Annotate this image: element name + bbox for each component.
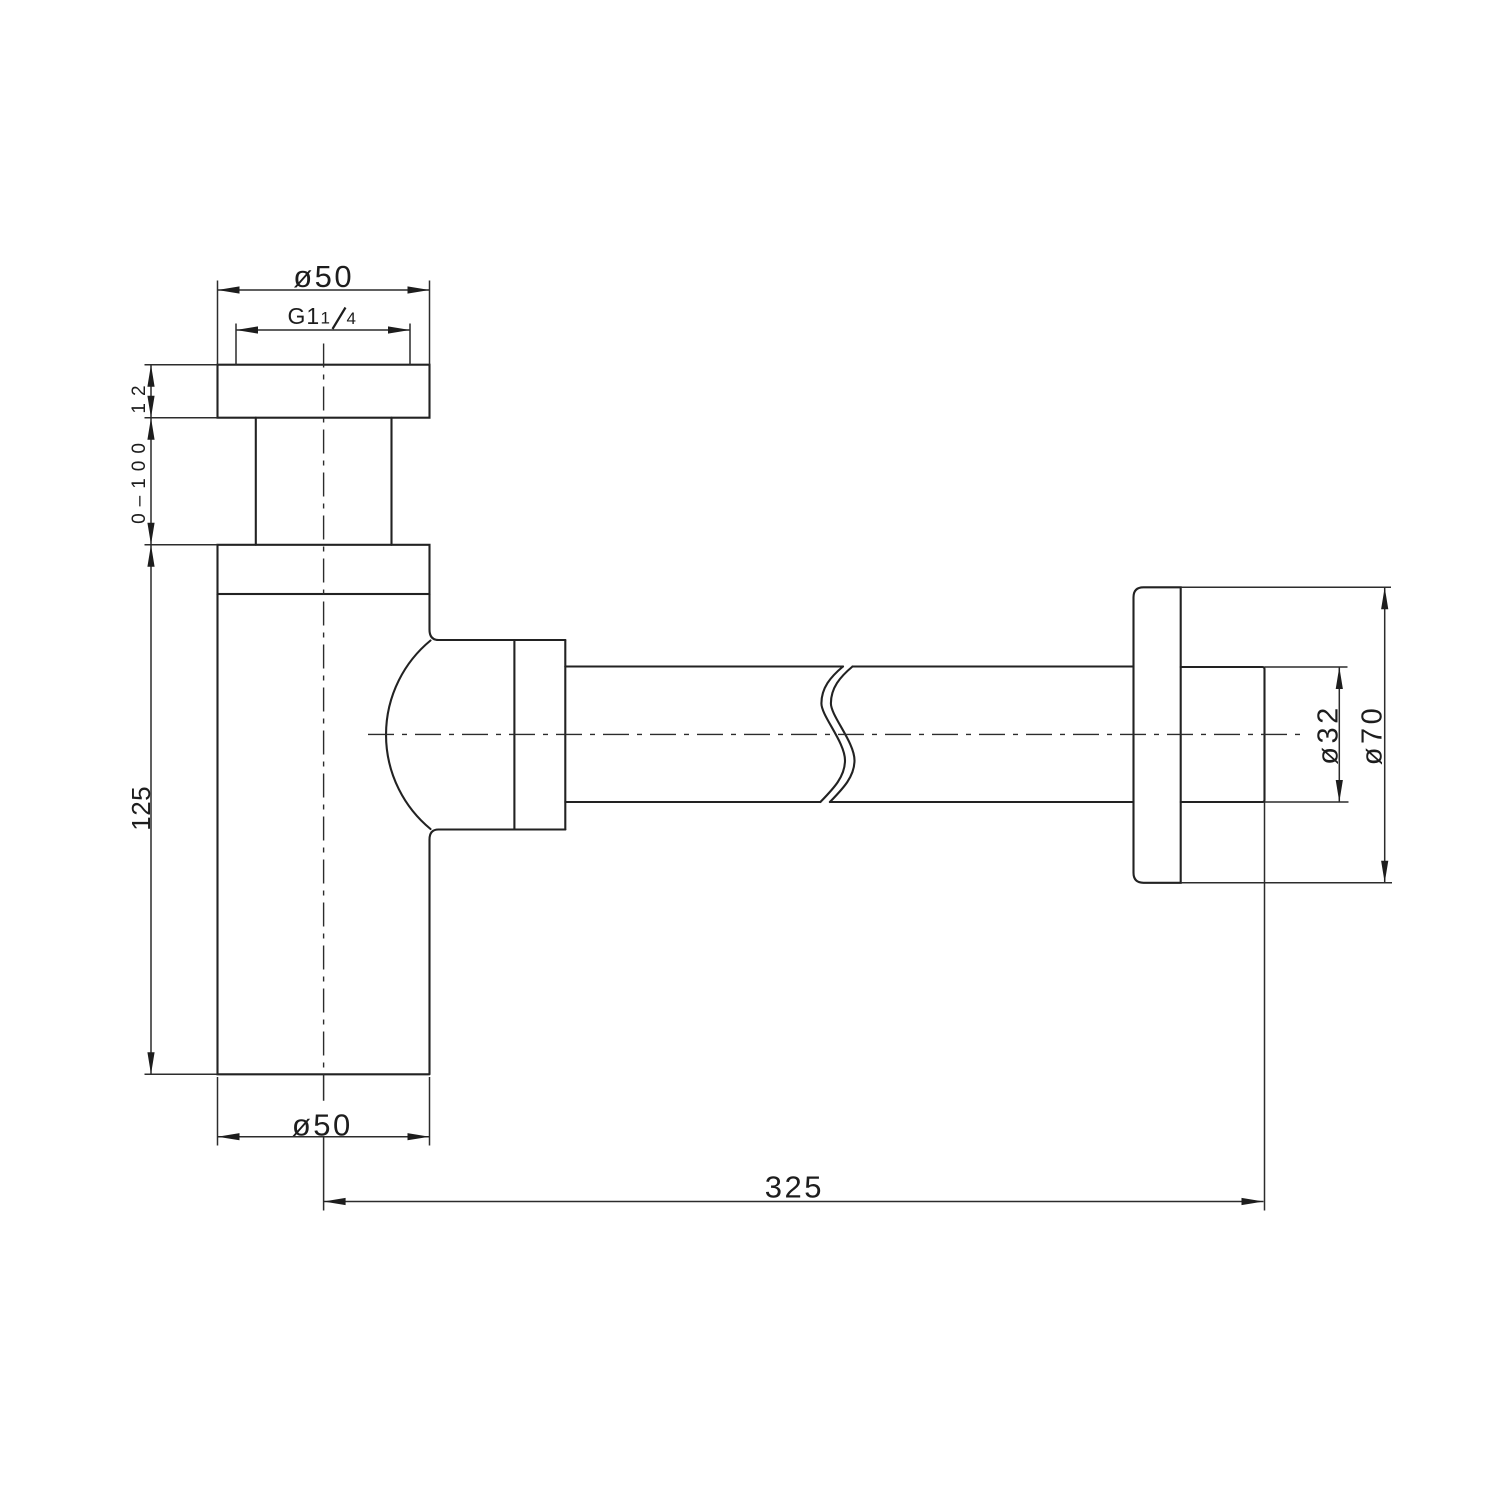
svg-text:ø50: ø50 xyxy=(293,259,354,294)
svg-text:125: 125 xyxy=(126,786,156,831)
svg-text:G1: G1 xyxy=(288,303,321,329)
svg-text:ø50: ø50 xyxy=(292,1108,353,1143)
svg-text:ø32: ø32 xyxy=(1313,704,1345,764)
svg-text:4: 4 xyxy=(347,309,356,328)
svg-text:325: 325 xyxy=(765,1170,824,1205)
svg-text:12: 12 xyxy=(129,378,150,413)
svg-text:0–100: 0–100 xyxy=(129,436,150,524)
svg-text:ø70: ø70 xyxy=(1357,705,1389,765)
svg-text:1: 1 xyxy=(321,309,330,328)
